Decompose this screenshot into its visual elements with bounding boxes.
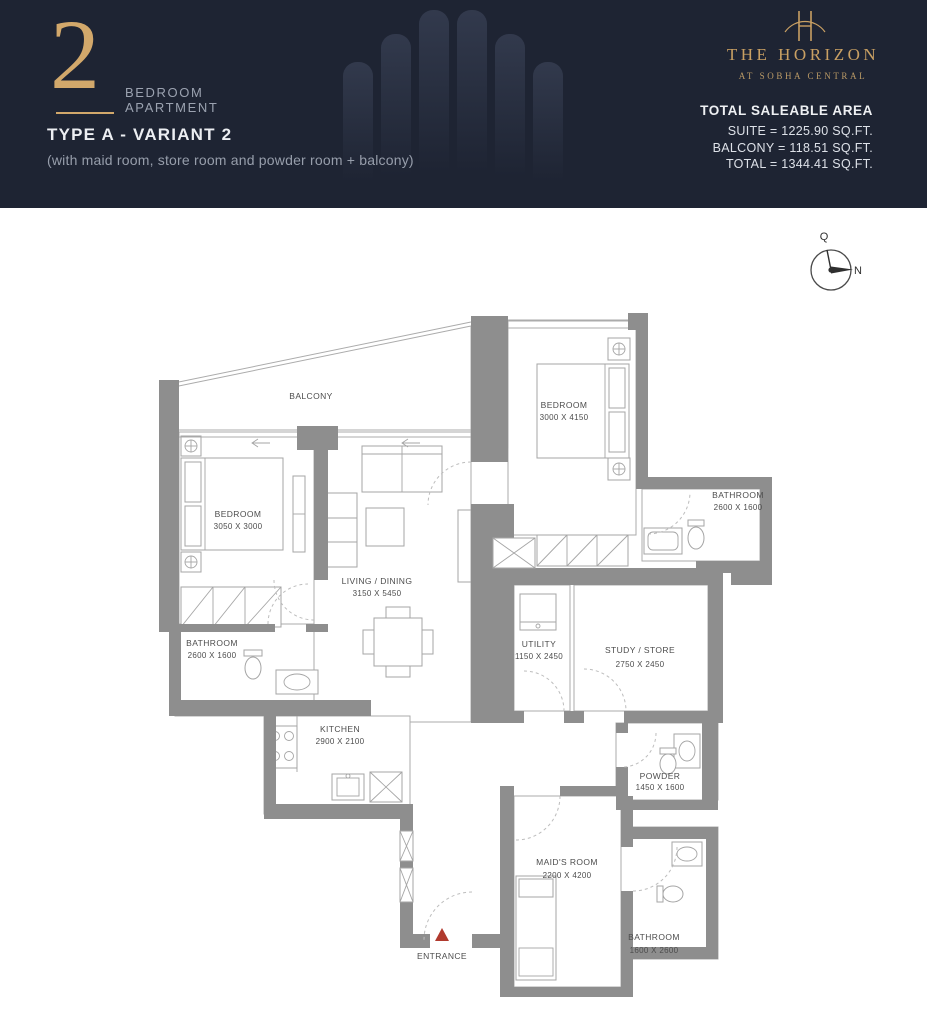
variant-title: TYPE A - VARIANT 2: [47, 125, 232, 145]
room-label-maids-room: MAID'S ROOM: [536, 857, 598, 867]
room-label-bedroom-1: BEDROOM: [215, 509, 262, 519]
room-label-bathroom-1: BATHROOM: [186, 638, 238, 648]
arch-bar: [495, 34, 525, 208]
arch-bar: [457, 10, 487, 208]
room-dims-kitchen: 2900 X 2100: [316, 737, 365, 746]
toilet: [245, 657, 261, 679]
maids-room-furniture: [516, 876, 556, 980]
toilet: [663, 886, 683, 902]
unit-type-line1: BEDROOM: [125, 85, 218, 100]
brand-name: THE HORIZON: [703, 45, 903, 65]
room-dims-bathroom-3: 1600 X 2600: [630, 946, 679, 955]
room-label-bathroom-3: BATHROOM: [628, 932, 680, 942]
entrance-label: ENTRANCE: [417, 951, 467, 961]
arch-bar: [533, 62, 563, 208]
door-entrance: [424, 892, 472, 940]
room-dims-living-dining: 3150 X 5450: [353, 589, 402, 598]
washbasin: [674, 734, 700, 768]
area-title: TOTAL SALEABLE AREA: [700, 103, 873, 118]
wardrobe: [181, 587, 281, 627]
room-dims-bedroom-2: 3000 X 4150: [540, 413, 589, 422]
room-label-bedroom-2: BEDROOM: [541, 400, 588, 410]
compass: Q N: [791, 224, 875, 302]
room-dims-utility: 1150 X 2450: [515, 652, 563, 661]
utility-fixtures: [520, 594, 556, 630]
unit-number: 2: [50, 2, 100, 107]
room-dims-study-store: 2750 X 2450: [616, 660, 665, 669]
compass-hand-up: [827, 250, 831, 270]
compass-north-label: N: [854, 265, 862, 277]
arch-bar: [381, 34, 411, 208]
variant-subtitle: (with maid room, store room and powder r…: [47, 152, 414, 168]
arch-bar: [419, 10, 449, 208]
horizon-logo-icon: [783, 6, 827, 46]
unit-number-underline: [56, 112, 114, 114]
room-label-powder: POWDER: [640, 771, 681, 781]
room-dims-powder: 1450 X 1600: [636, 783, 685, 792]
room-label-kitchen: KITCHEN: [320, 724, 360, 734]
unit-type-line2: APARTMENT: [125, 100, 218, 115]
entrance-marker: [435, 928, 449, 941]
room-dims-bathroom-2: 2600 X 1600: [714, 503, 763, 512]
toilet: [688, 527, 704, 549]
room-label-balcony: BALCONY: [289, 391, 332, 401]
unit-type: BEDROOM APARTMENT: [125, 85, 218, 116]
header-banner: 2 BEDROOM APARTMENT TYPE A - VARIANT 2 (…: [0, 0, 927, 208]
room-label-study-store: STUDY / STORE: [605, 645, 675, 655]
room-balcony: [169, 326, 471, 432]
room-dims-maids-room: 2200 X 4200: [543, 871, 592, 880]
tv-unit: [458, 510, 471, 582]
room-label-bathroom-2: BATHROOM: [712, 490, 764, 500]
compass-top-label: Q: [820, 231, 829, 243]
room-dims-bathroom-1: 2600 X 1600: [188, 651, 237, 660]
washing-machine: [520, 594, 556, 630]
area-total: TOTAL = 1344.41 SQ.FT.: [700, 156, 873, 173]
room-dims-bedroom-1: 3050 X 3000: [214, 522, 263, 531]
brand-tagline: AT SOBHA CENTRAL: [703, 71, 903, 81]
arch-bar: [343, 62, 373, 208]
compass-hand-north: [831, 267, 853, 274]
saleable-area-block: TOTAL SALEABLE AREA SUITE = 1225.90 SQ.F…: [700, 103, 873, 173]
area-balcony: BALCONY = 118.51 SQ.FT.: [700, 140, 873, 157]
area-suite: SUITE = 1225.90 SQ.FT.: [700, 123, 873, 140]
floor-plan-page: 2 BEDROOM APARTMENT TYPE A - VARIANT 2 (…: [0, 0, 927, 1024]
room-label-utility: UTILITY: [522, 639, 556, 649]
sofa-side: [323, 493, 357, 567]
floor-plan: BALCONY BEDROOM 3050 X 3000 BATHROOM 260…: [140, 280, 780, 1000]
room-label-living-dining: LIVING / DINING: [342, 576, 413, 586]
compass-pivot: [828, 267, 833, 272]
dining-table: [374, 618, 422, 666]
coffee-table: [366, 508, 404, 546]
